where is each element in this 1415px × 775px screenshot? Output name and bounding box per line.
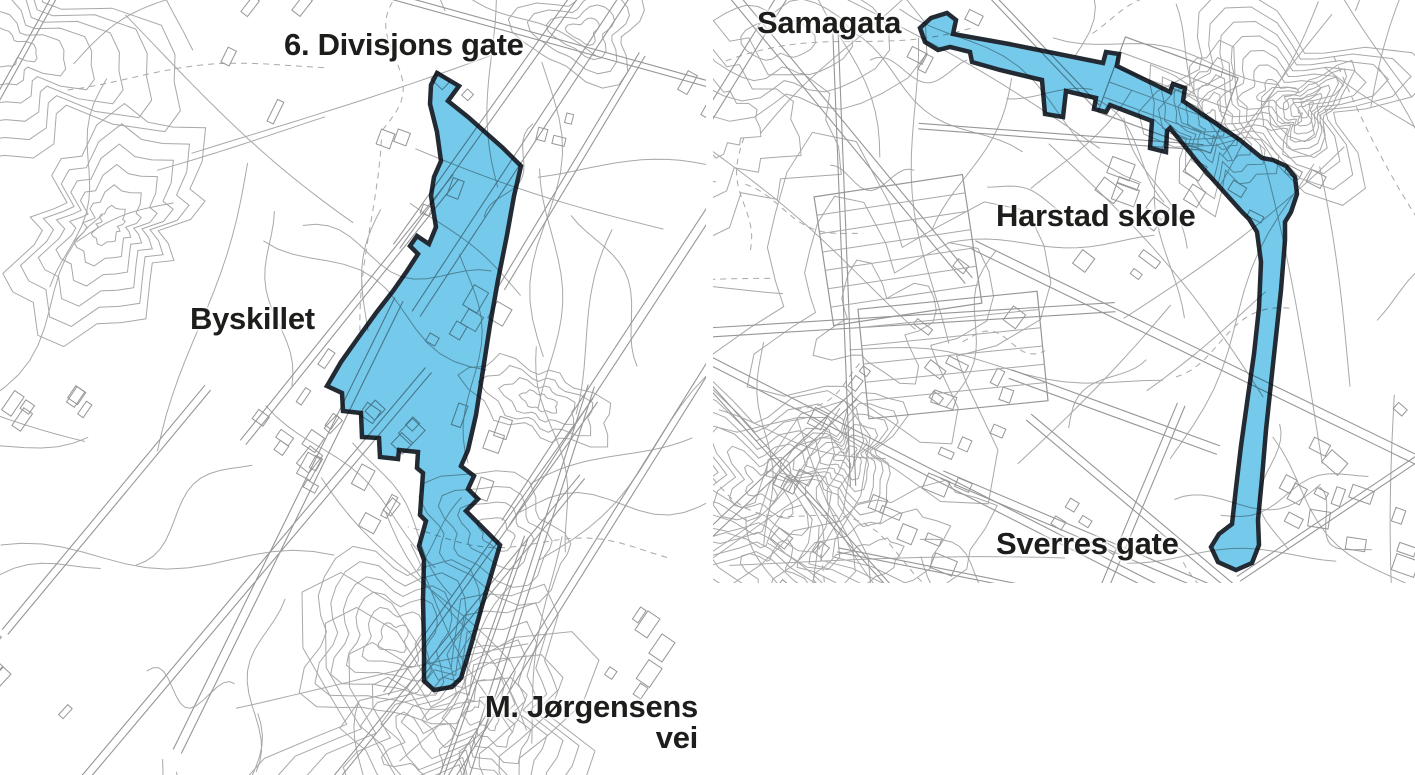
map-panel-left	[0, 0, 706, 775]
label-divisjons-gate: 6. Divisjons gate	[284, 27, 524, 63]
label-jorgensens-vei: M. Jørgensens vei	[438, 691, 698, 753]
label-harstad-skole: Harstad skole	[996, 198, 1195, 234]
label-jorgensens-vei-line2: vei	[656, 720, 698, 755]
label-jorgensens-vei-line1: M. Jørgensens	[485, 689, 698, 724]
map-panel-right	[713, 0, 1415, 583]
label-byskillet: Byskillet	[190, 301, 315, 337]
map-canvas-right	[713, 0, 1415, 583]
label-sverres-gate: Sverres gate	[996, 526, 1179, 562]
map-figure: 6. Divisjons gate Byskillet M. Jørgensen…	[0, 0, 1415, 775]
label-samagata: Samagata	[757, 5, 901, 41]
map-canvas-left	[0, 0, 706, 775]
